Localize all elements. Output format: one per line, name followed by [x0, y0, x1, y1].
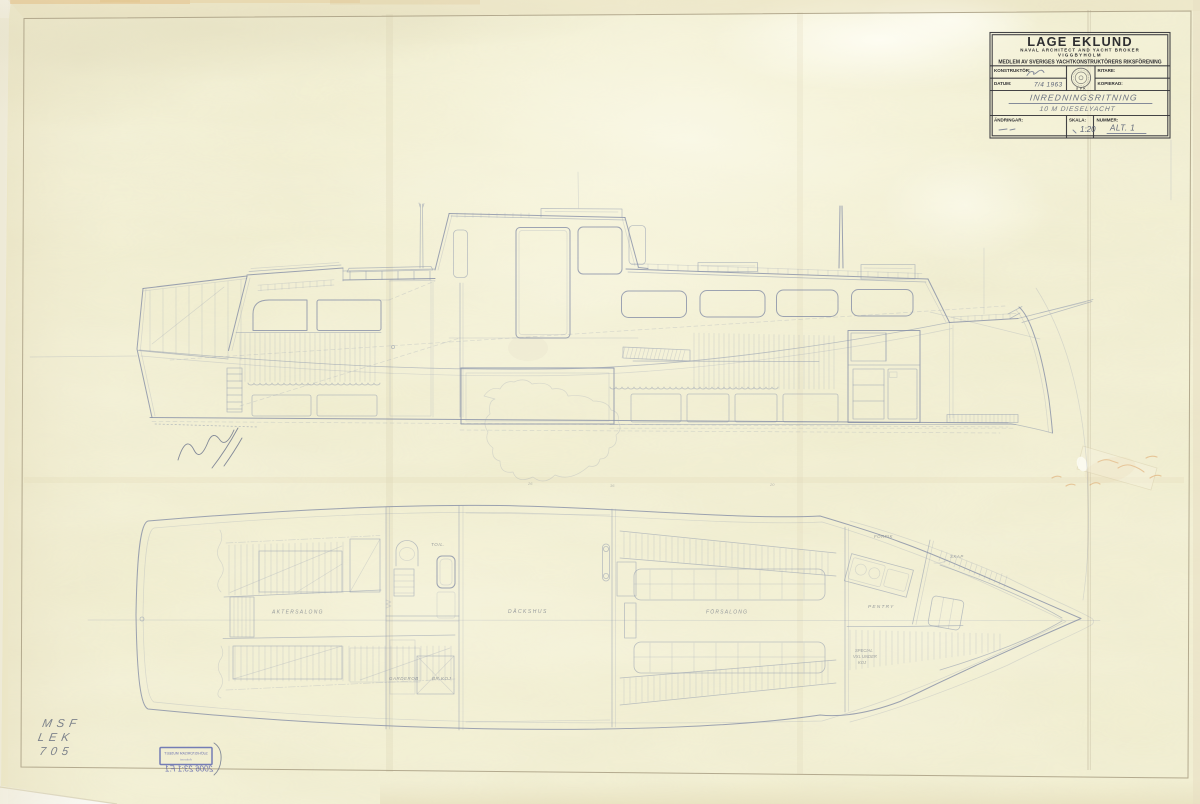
svg-text:7 0 5: 7 0 5: [38, 746, 70, 758]
svg-text:VXL UNDER: VXL UNDER: [853, 654, 877, 659]
svg-text:KOJ: KOJ: [858, 660, 867, 665]
svg-text:DATUM:: DATUM:: [994, 81, 1012, 86]
svg-text:AKTERSALONG: AKTERSALONG: [271, 610, 324, 616]
svg-text:L E K: L E K: [37, 732, 71, 744]
svg-text:1:20: 1:20: [1080, 125, 1096, 134]
svg-text:S V K: S V K: [1076, 87, 1086, 91]
svg-text:VIGGBYHOLM: VIGGBYHOLM: [1058, 53, 1102, 58]
svg-text:NUMMER:: NUMMER:: [1097, 118, 1119, 123]
svg-text:2006 23:1 F.1: 2006 23:1 F.1: [165, 765, 214, 774]
svg-text:KONSTRUKTÖR:: KONSTRUKTÖR:: [994, 67, 1031, 73]
svg-text:FÖRPIK: FÖRPIK: [874, 534, 894, 539]
svg-text:RITARE:: RITARE:: [1098, 68, 1116, 73]
svg-text:SJÖHISTORISKA MUSEET: SJÖHISTORISKA MUSEET: [163, 752, 207, 756]
svg-text:ALT. 1: ALT. 1: [1109, 124, 1135, 133]
svg-text:7/4 1963: 7/4 1963: [1034, 82, 1063, 89]
svg-text:SKALA:: SKALA:: [1069, 118, 1086, 123]
svg-text:20: 20: [769, 482, 775, 487]
svg-text:26: 26: [527, 481, 533, 486]
svg-text:DÄCKSHUS: DÄCKSHUS: [508, 608, 548, 615]
svg-text:36: 36: [610, 483, 615, 488]
svg-text:PENTRY: PENTRY: [868, 604, 894, 610]
svg-text:BR.KOJ: BR.KOJ: [432, 676, 452, 681]
svg-text:10 M DIESELYACHT: 10 M DIESELYACHT: [1039, 106, 1116, 113]
svg-text:GARDEROB: GARDEROB: [389, 676, 419, 681]
svg-text:TOIL.: TOIL.: [431, 542, 445, 547]
svg-text:SPECIAL: SPECIAL: [855, 648, 873, 653]
svg-text:ÄNDRINGAR:: ÄNDRINGAR:: [994, 117, 1023, 123]
svg-text:M S F: M S F: [41, 718, 78, 730]
svg-text:Ankomst: Ankomst: [180, 758, 193, 762]
svg-text:INREDNINGSRITNING: INREDNINGSRITNING: [1029, 93, 1138, 103]
svg-text:KOPIERAD:: KOPIERAD:: [1098, 81, 1124, 86]
svg-text:FÖRSALONG: FÖRSALONG: [706, 609, 748, 616]
svg-text:MEDLEM AV SVERIGES YACHTKONSTR: MEDLEM AV SVERIGES YACHTKONSTRUKTÖRERS R…: [998, 59, 1161, 66]
svg-text:NAVAL ARCHITECT AND YACHT BROK: NAVAL ARCHITECT AND YACHT BROKER: [1020, 47, 1140, 52]
